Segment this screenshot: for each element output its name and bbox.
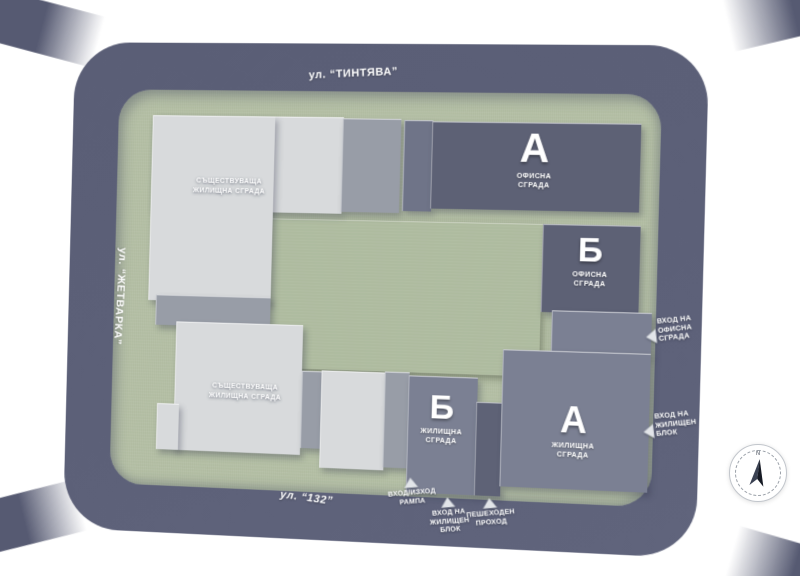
compass-needle-icon [745,457,770,489]
entrance-residential-right: ВХОД НА ЖИЛИЩЕН БЛОК [654,409,705,440]
arrow-up-icon [440,497,455,508]
existing-building-bottom: СЪЩЕСТВУВАЩА ЖИЛИЩНА СГРАДА [156,321,302,454]
street-stub-bottom-left [0,472,115,556]
building-office-b-body [541,224,641,315]
existing-building-top-label: СЪЩЕСТВУВАЩА ЖИЛИЩНА СГРАДА [178,176,281,197]
street-stub-top-left [0,0,133,75]
arrow-left-icon [643,424,655,439]
entrance-pedestrian-passage-label: ПЕШЕХОДЕН ПРОХОД [466,508,515,527]
entrance-office-building: ВХОД НА ОФИСНА СГРАДА [656,313,707,344]
existing-building-bottom-label: СЪЩЕСТВУВАЩА ЖИЛИЩНА СГРАДА [195,381,294,403]
building-office-b[interactable]: Б ОФИСНА СГРАДА [541,224,640,314]
top-row-gray-segment [341,118,402,213]
compass-north-label: N [730,451,786,457]
existing-building-top: СЪЩЕСТВУВАЩА ЖИЛИЩНА СГРАДА [148,115,343,304]
entrance-residential-right-label: ВХОД НА ЖИЛИЩЕН БЛОК [654,410,697,438]
building-residential-a-tab [551,310,652,357]
pedestrian-passage-block [474,402,503,497]
building-residential-a[interactable]: А ЖИЛИЩНА СГРАДА [499,309,651,492]
building-residential-a-body [499,349,650,493]
entrance-office-building-label: ВХОД НА ОФИСНА СГРАДА [656,315,692,343]
building-office-a-body [430,121,641,212]
arrow-up-icon [482,498,497,509]
existing-building-bottom-tab [156,403,179,450]
lower-light-block [319,370,386,470]
site-plan: СЪЩЕСТВУВАЩА ЖИЛИЩНА СГРАДА А ОФИСНА СГР… [8,0,800,576]
street-stub-bottom-right [695,517,800,576]
site-plan-canvas: СЪЩЕСТВУВАЩА ЖИЛИЩНА СГРАДА А ОФИСНА СГР… [0,0,800,576]
arrow-up-icon [403,477,418,488]
compass: N [729,444,787,502]
arrow-left-icon [645,329,657,344]
top-row-blue-segment [402,120,433,212]
entrance-pedestrian-passage: ПЕШЕХОДЕН ПРОХОД [460,496,521,530]
building-office-a[interactable]: А ОФИСНА СГРАДА [430,121,640,211]
existing-building-top-body [148,115,275,303]
street-stub-top-right [691,0,800,59]
